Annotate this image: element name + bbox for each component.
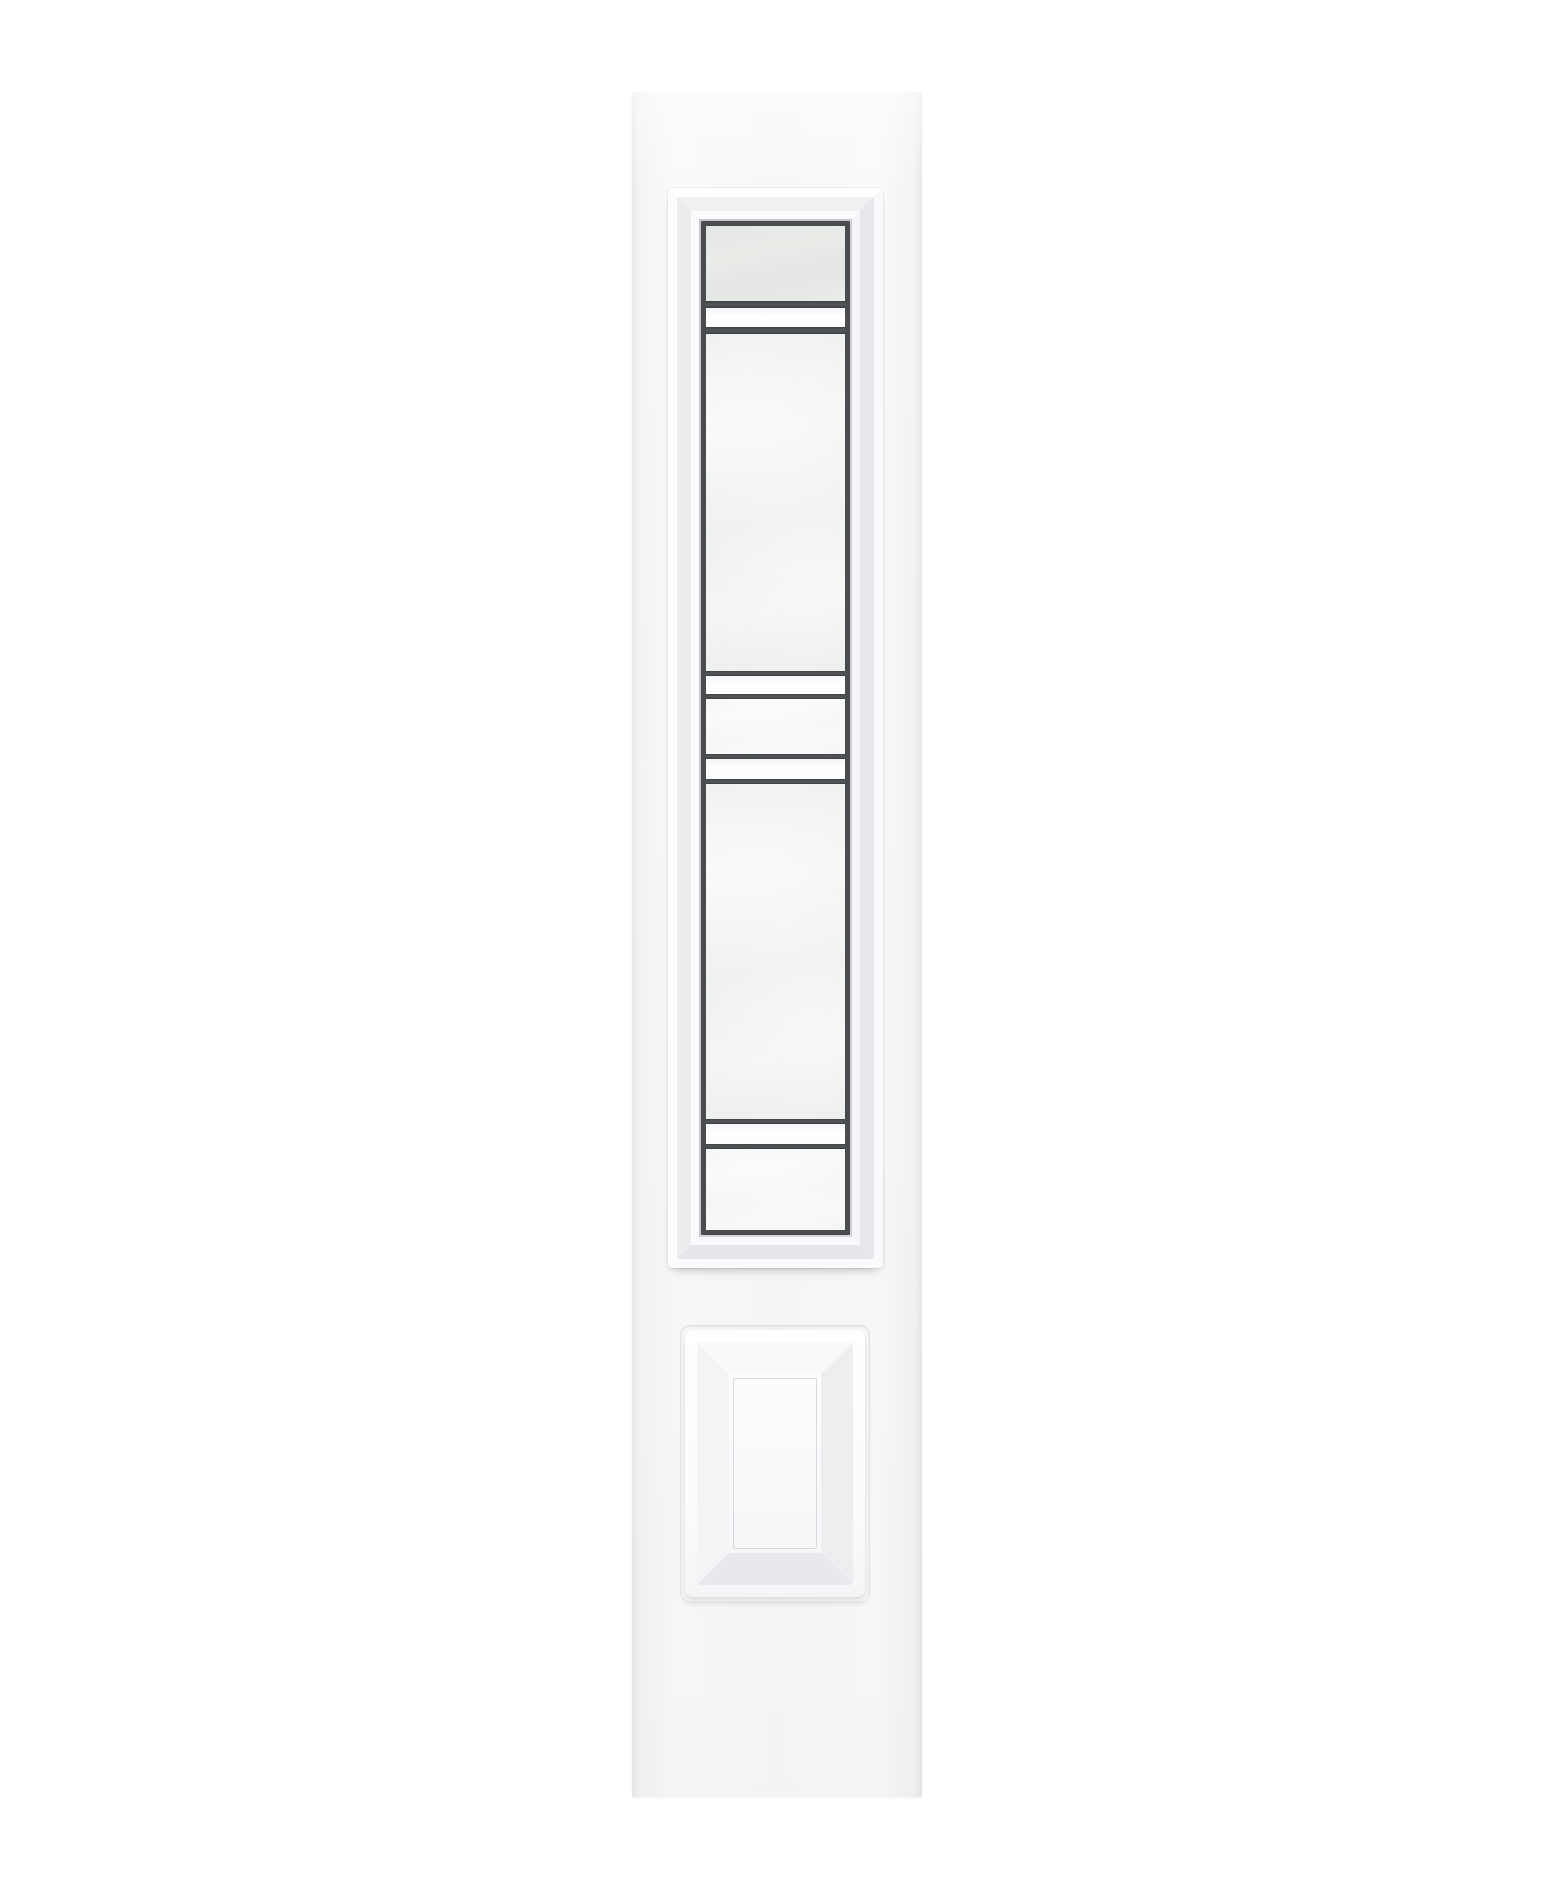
glass-section-frosted	[706, 784, 845, 1119]
glass-section-clear	[706, 308, 845, 327]
caming-bar	[706, 301, 845, 308]
decorative-glass-with-caming-border	[701, 221, 850, 1235]
molding-inner-step	[691, 211, 860, 1245]
bottom-panel-center-field	[729, 1374, 821, 1553]
glass-section-frosted	[706, 334, 845, 671]
glass-section-frosted_top	[706, 226, 845, 301]
glass-section-clear	[706, 676, 845, 694]
glass-section-frosted	[706, 699, 845, 754]
glass-section-frosted	[706, 1149, 845, 1230]
bottom-panel-raised-frame	[685, 1330, 865, 1597]
bottom-panel-bevel-slope	[697, 1342, 853, 1585]
bottom-raised-panel-groove	[680, 1325, 870, 1602]
molding-bevel-slope	[677, 197, 874, 1259]
glass-insert-molding-frame	[668, 188, 883, 1268]
product-photo-canvas	[0, 0, 1552, 1890]
glass-section-clear	[706, 1124, 845, 1144]
door-sidelight-slab	[632, 92, 922, 1797]
glass-section-clear	[706, 759, 845, 779]
glass-recess-shadow-line	[699, 219, 852, 1237]
caming-bar	[706, 327, 845, 334]
